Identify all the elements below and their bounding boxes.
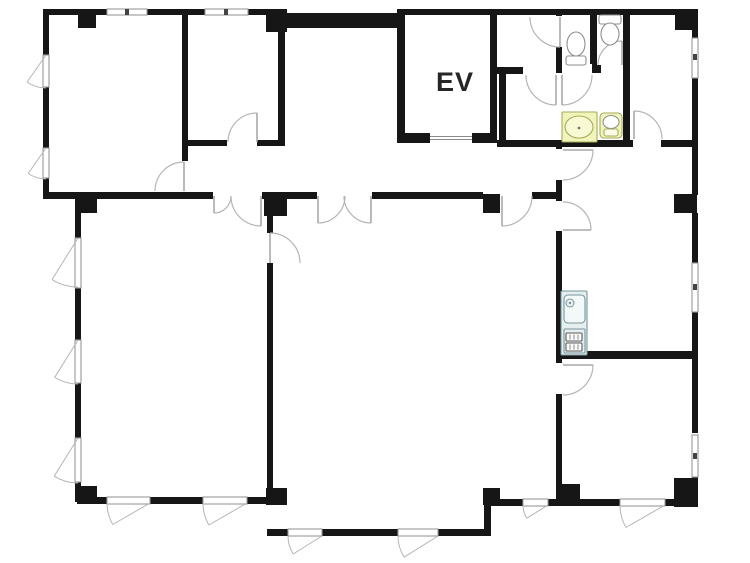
wall	[43, 9, 49, 55]
window-swing-leaf	[54, 438, 78, 476]
wall	[187, 140, 227, 146]
window-swing-arc	[398, 536, 404, 557]
toilet-tank	[566, 56, 586, 65]
wall	[397, 133, 430, 143]
door-opening	[555, 201, 563, 231]
window-glass	[288, 529, 322, 536]
hand-basin-bowl	[603, 116, 619, 129]
wall	[438, 529, 491, 536]
window-glass	[75, 340, 81, 383]
window-swing-leaf	[404, 536, 438, 557]
wall	[556, 47, 562, 67]
window-glass	[75, 238, 81, 288]
column	[266, 488, 287, 505]
wall	[43, 9, 107, 15]
door-opening	[555, 363, 563, 394]
toilet-bowl	[601, 23, 619, 45]
wall	[484, 504, 491, 534]
column	[674, 478, 697, 507]
window-swing-leaf	[113, 503, 150, 525]
wall	[499, 67, 506, 143]
wall	[187, 9, 205, 15]
wall	[623, 65, 630, 73]
window-swing-arc	[288, 536, 293, 554]
door-swing-arc	[318, 196, 345, 223]
wall	[472, 133, 497, 143]
wall	[692, 213, 698, 263]
column	[77, 486, 97, 504]
door-swing-arc	[228, 113, 257, 142]
door-swing-arc	[634, 111, 662, 139]
door-swing-arc	[502, 196, 532, 226]
door-opening	[227, 139, 257, 146]
wall	[397, 13, 405, 143]
window-tick	[693, 54, 697, 60]
window-tick	[125, 9, 129, 15]
window-swing-leaf	[527, 505, 548, 518]
wall	[556, 180, 562, 201]
window-glass	[398, 529, 438, 536]
door-opening	[633, 139, 661, 148]
window-glass	[620, 499, 665, 506]
column	[264, 194, 287, 216]
wall	[278, 28, 285, 145]
column	[266, 9, 287, 32]
door-opening	[601, 64, 623, 74]
window-swing-leaf	[293, 536, 322, 554]
wall	[267, 529, 288, 536]
wall	[592, 65, 601, 73]
window-swing-arc	[52, 280, 78, 287]
wall	[283, 13, 405, 28]
door-swing-arc	[270, 233, 300, 263]
door-swing-arc	[563, 150, 593, 180]
column	[78, 9, 96, 28]
wall	[490, 9, 497, 143]
door-swing-arc	[562, 75, 592, 105]
wall	[322, 529, 398, 536]
door-swing-arc	[155, 162, 184, 191]
window-tick	[693, 284, 697, 290]
wall	[257, 140, 285, 146]
door-opening	[500, 192, 532, 199]
door-swing-arc	[231, 196, 261, 226]
elevator-label: EV	[436, 67, 474, 97]
wall	[692, 78, 698, 195]
column	[675, 12, 697, 30]
floor-plan-image: EV	[0, 0, 750, 563]
wall	[397, 9, 492, 15]
door-opening	[523, 66, 556, 75]
elevator-door	[430, 134, 472, 142]
wall	[43, 192, 213, 199]
wall	[590, 15, 597, 65]
wall	[372, 192, 483, 199]
wall	[490, 67, 523, 74]
window-swing-arc	[107, 503, 113, 525]
window-glass	[523, 499, 548, 506]
window-glass	[203, 497, 247, 504]
wall	[267, 263, 273, 501]
wall	[548, 499, 620, 506]
wall	[75, 288, 81, 340]
door-opening	[555, 16, 563, 47]
window-tick	[693, 453, 697, 459]
column	[560, 484, 580, 501]
wall	[150, 497, 203, 504]
window-swing-arc	[620, 505, 626, 528]
wall	[630, 140, 633, 147]
column	[674, 194, 697, 213]
door-swing-arc	[563, 365, 593, 395]
wall	[556, 143, 562, 150]
column	[77, 197, 97, 213]
window-tick	[224, 9, 228, 15]
floor-plan-svg: EV	[0, 0, 750, 563]
door-opening	[181, 161, 189, 191]
column	[483, 488, 500, 505]
wall	[75, 383, 81, 438]
wall	[556, 65, 562, 73]
window-swing-leaf	[52, 238, 78, 280]
toilet-bowl	[567, 32, 585, 56]
column	[483, 194, 500, 213]
window-swing-arc	[203, 503, 209, 525]
window-swing-leaf	[626, 505, 665, 528]
window-swing-arc	[54, 476, 78, 483]
wall	[182, 9, 188, 161]
wall	[556, 9, 562, 16]
kitchenette-faucet-dot	[569, 302, 571, 304]
window-glass	[75, 438, 81, 482]
window-swing-leaf	[209, 503, 247, 525]
window-glass	[43, 148, 49, 178]
window-glass	[107, 497, 150, 504]
kitchenette-sink	[564, 295, 585, 323]
wall	[43, 87, 49, 148]
window-glass	[43, 55, 49, 87]
window-swing-arc	[523, 505, 527, 518]
wall	[490, 9, 697, 15]
wall	[147, 9, 187, 15]
wall	[692, 312, 698, 433]
wall	[661, 140, 697, 147]
door-swing-arc	[526, 75, 556, 105]
door-swing-arc	[344, 196, 371, 223]
hand-basin-tray	[604, 129, 618, 136]
door-opening	[213, 192, 262, 199]
door-opening	[555, 149, 563, 180]
washbasin-drain	[578, 127, 581, 130]
wall	[623, 15, 630, 143]
door-swing-arc	[563, 202, 591, 230]
